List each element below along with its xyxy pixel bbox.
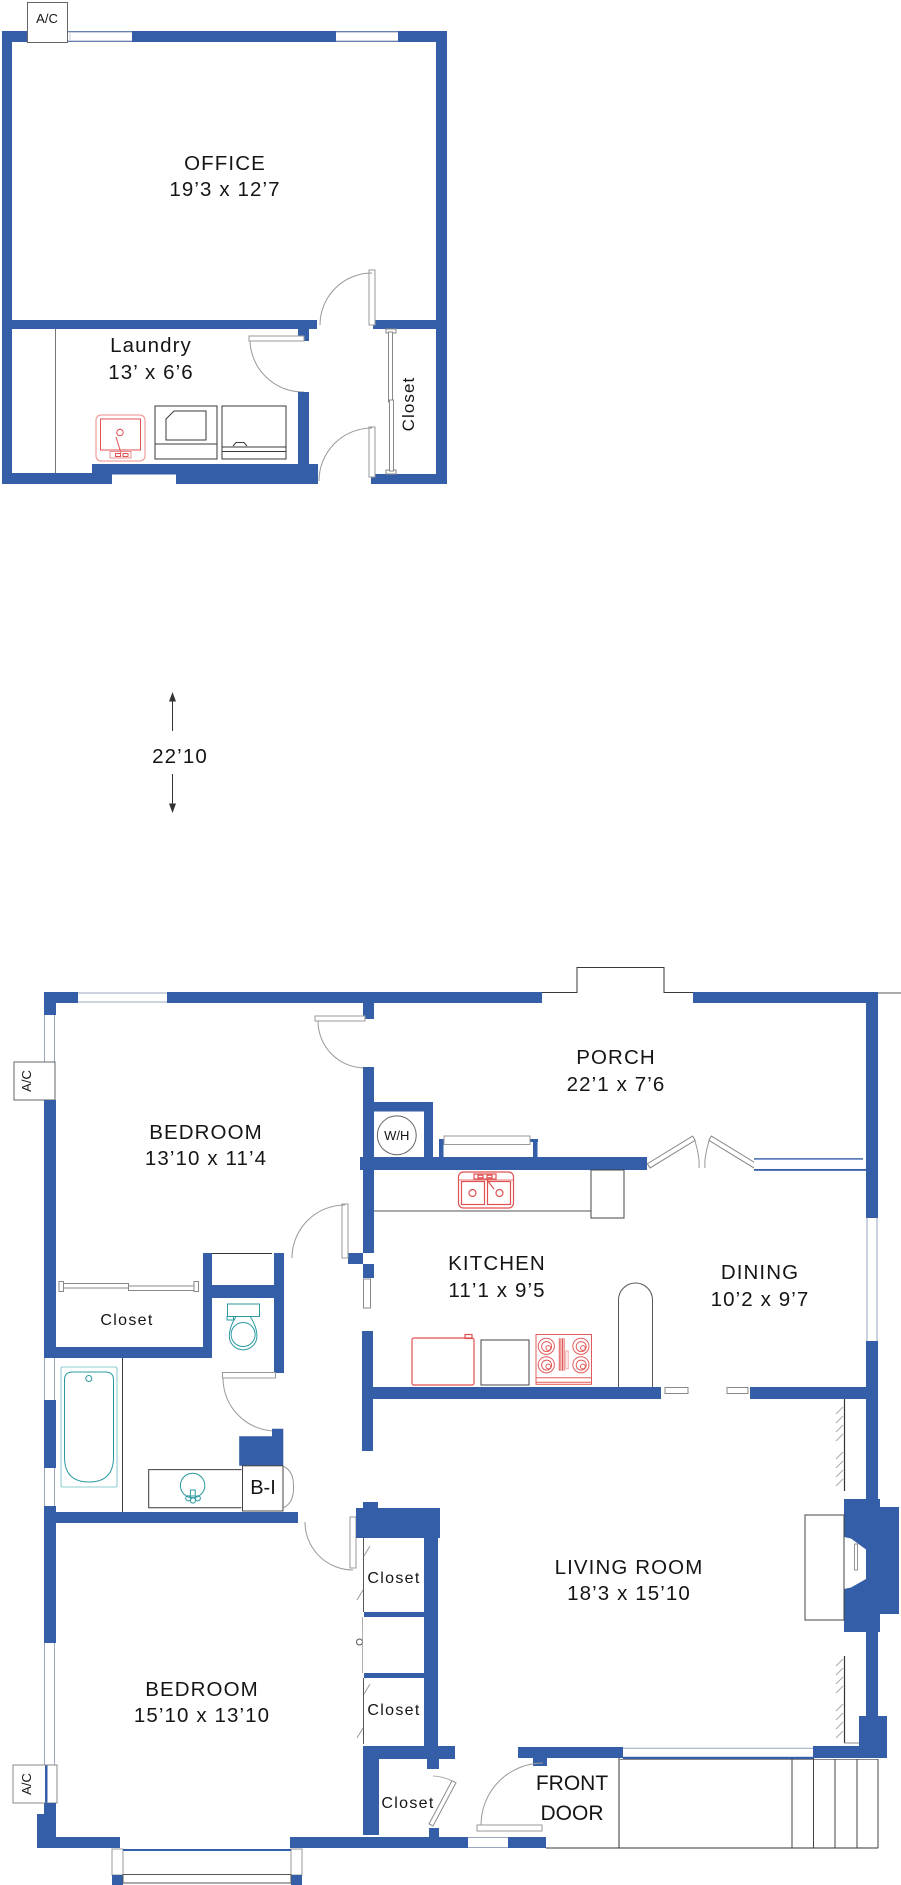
svg-text:A/C: A/C (19, 1773, 34, 1795)
svg-text:13’ x 6’6: 13’ x 6’6 (108, 361, 194, 384)
svg-text:PORCH: PORCH (576, 1046, 656, 1069)
svg-text:10’2 x 9’7: 10’2 x 9’7 (711, 1288, 810, 1311)
svg-text:W/H: W/H (384, 1128, 409, 1143)
svg-text:LIVING ROOM: LIVING ROOM (555, 1556, 704, 1579)
svg-text:DOOR: DOOR (541, 1802, 604, 1825)
svg-text:Closet: Closet (381, 1795, 434, 1812)
svg-text:18’3 x 15’10: 18’3 x 15’10 (567, 1582, 691, 1605)
svg-text:DINING: DINING (721, 1261, 799, 1284)
svg-text:19’3 x 12’7: 19’3 x 12’7 (169, 178, 280, 201)
svg-text:Closet: Closet (399, 377, 418, 432)
svg-text:BEDROOM: BEDROOM (149, 1121, 263, 1144)
svg-text:11’1 x 9’5: 11’1 x 9’5 (448, 1279, 545, 1302)
svg-text:OFFICE: OFFICE (184, 152, 266, 175)
svg-text:Closet: Closet (367, 1570, 420, 1587)
svg-text:A/C: A/C (19, 1070, 34, 1092)
svg-text:22’1 x 7’6: 22’1 x 7’6 (567, 1073, 666, 1096)
svg-text:B-I: B-I (250, 1477, 276, 1499)
svg-text:FRONT: FRONT (536, 1772, 608, 1795)
svg-text:A/C: A/C (36, 11, 58, 26)
svg-text:22’10: 22’10 (152, 745, 208, 768)
svg-text:13’10 x 11’4: 13’10 x 11’4 (145, 1147, 267, 1170)
svg-text:Laundry: Laundry (110, 334, 192, 357)
svg-text:KITCHEN: KITCHEN (448, 1252, 546, 1275)
svg-text:Closet: Closet (367, 1702, 420, 1719)
svg-text:15’10 x 13’10: 15’10 x 13’10 (134, 1704, 270, 1727)
svg-text:Closet: Closet (100, 1312, 153, 1329)
svg-text:BEDROOM: BEDROOM (145, 1678, 259, 1701)
